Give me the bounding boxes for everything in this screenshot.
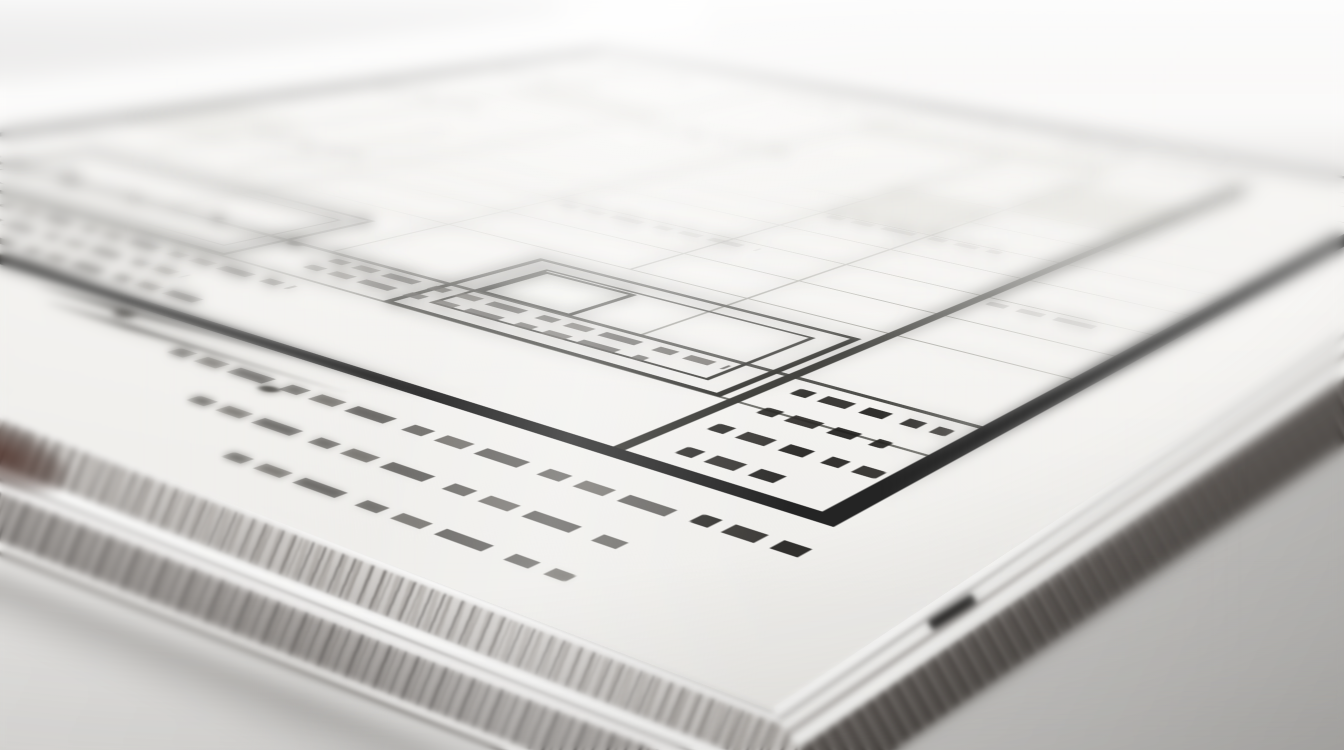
footer-bold-mark	[688, 514, 820, 560]
photo-stack-of-forms: Close-up photograph of a thick stack of …	[0, 0, 1344, 750]
